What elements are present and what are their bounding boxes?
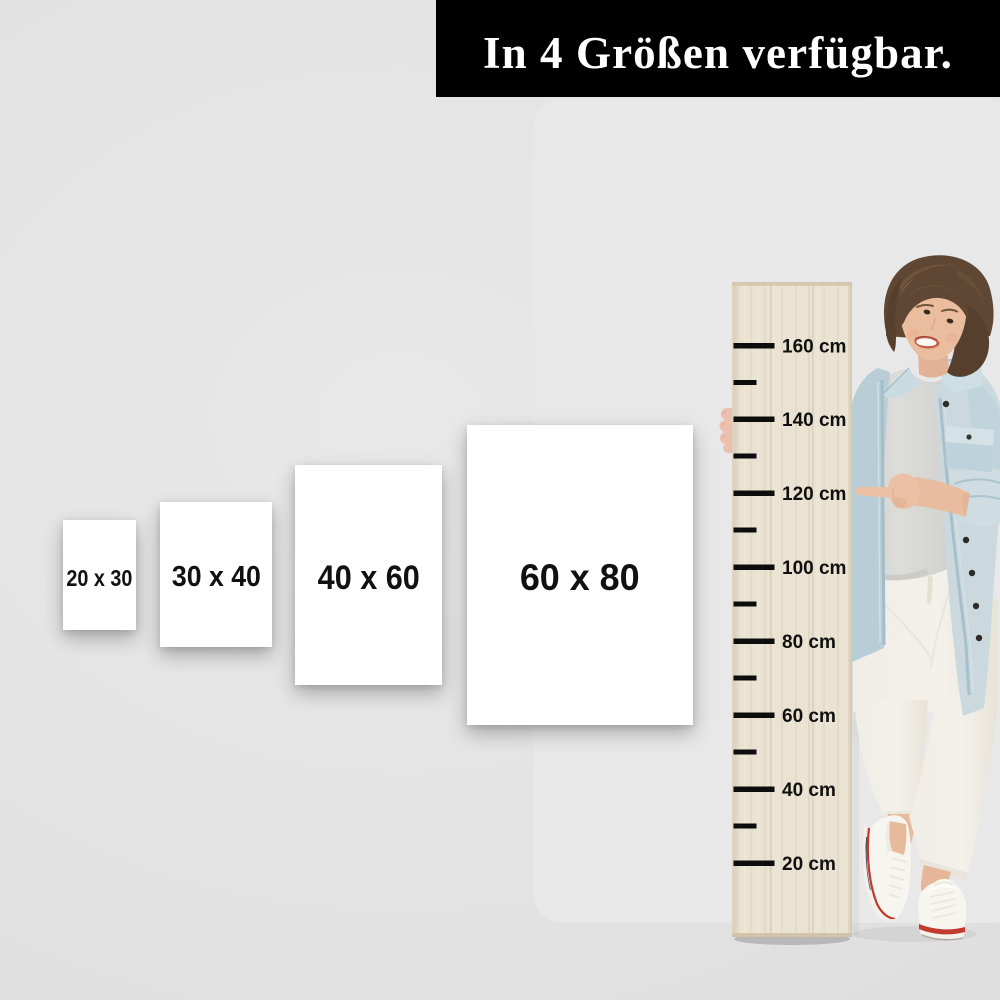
svg-text:80 cm: 80 cm [782, 632, 836, 653]
svg-text:40 cm: 40 cm [782, 780, 836, 801]
svg-text:160 cm: 160 cm [782, 337, 846, 358]
svg-text:20 cm: 20 cm [782, 854, 836, 875]
svg-text:100 cm: 100 cm [782, 558, 846, 579]
svg-text:60 cm: 60 cm [782, 706, 836, 727]
svg-text:140 cm: 140 cm [782, 410, 846, 431]
svg-text:120 cm: 120 cm [782, 484, 846, 505]
